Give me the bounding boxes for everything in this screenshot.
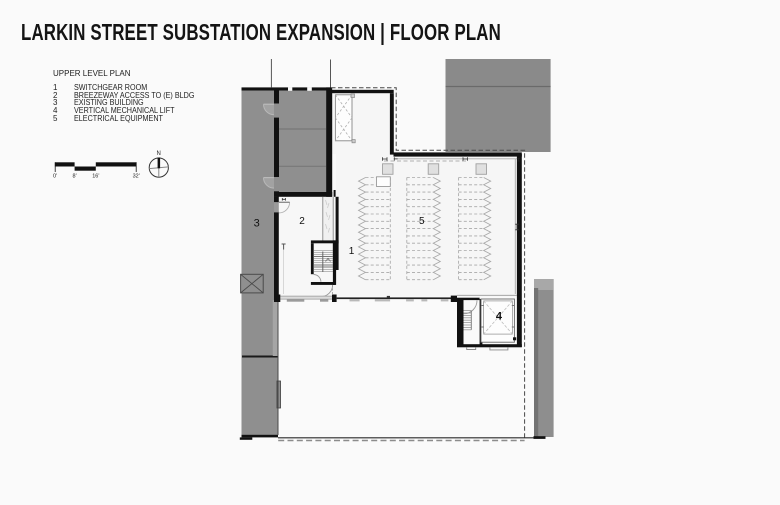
svg-text:32': 32' (133, 174, 140, 180)
svg-text:16': 16' (92, 174, 99, 180)
svg-text:1: 1 (349, 246, 355, 257)
svg-text:0': 0' (53, 174, 57, 180)
svg-text:2: 2 (299, 216, 305, 227)
svg-text:5: 5 (419, 216, 425, 227)
svg-text:N: N (157, 151, 161, 157)
svg-text:8': 8' (73, 174, 77, 180)
svg-text:3: 3 (254, 217, 260, 229)
svg-text:4: 4 (496, 311, 503, 323)
